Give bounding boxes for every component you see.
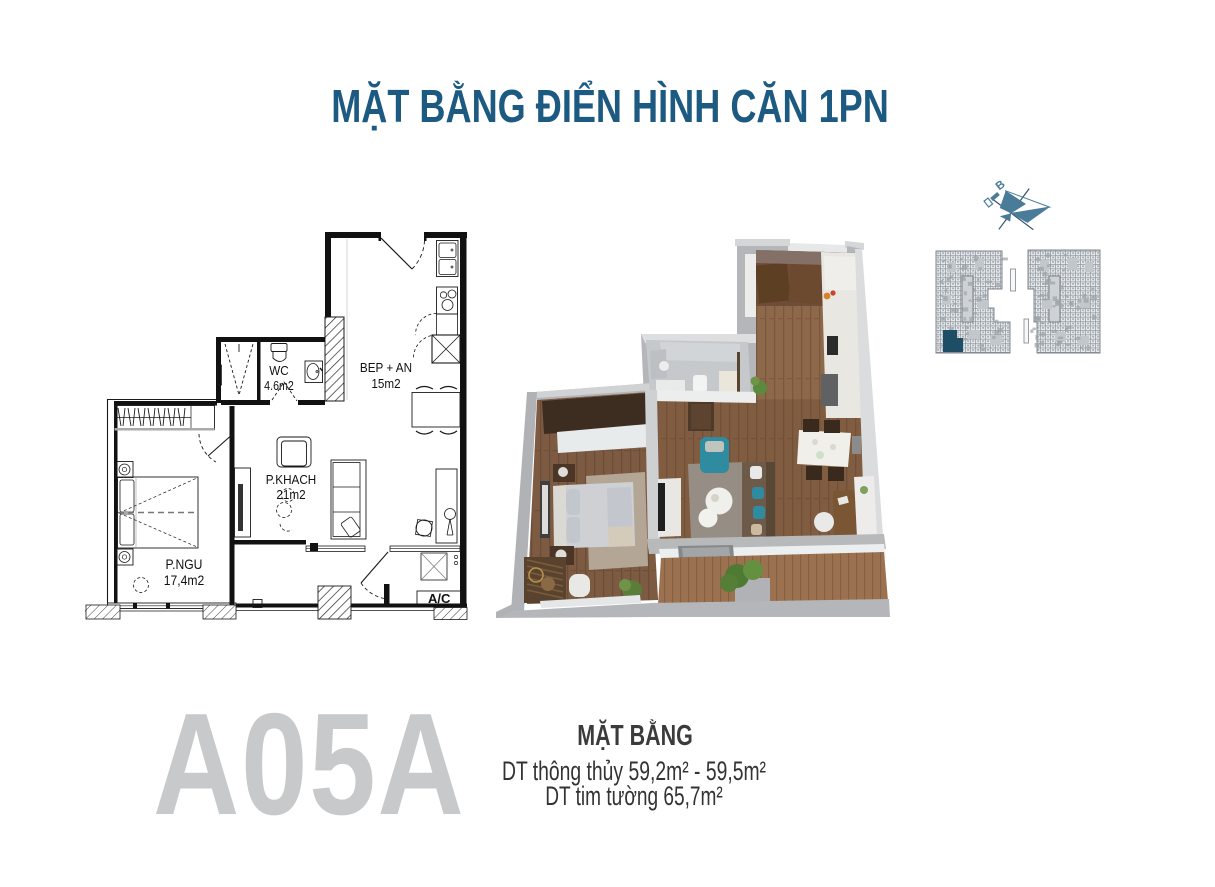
svg-text:17,4m2: 17,4m2 xyxy=(164,572,204,588)
svg-text:21m2: 21m2 xyxy=(276,487,305,502)
svg-text:MẶT BẰNG: MẶT BẰNG xyxy=(577,719,693,752)
svg-text:P.KHACH: P.KHACH xyxy=(266,472,316,487)
svg-text:A05A: A05A xyxy=(153,684,465,845)
svg-text:BEP + AN: BEP + AN xyxy=(360,360,412,375)
svg-text:4.6m2: 4.6m2 xyxy=(264,378,294,393)
svg-text:DT tim tường 65,7m²: DT tim tường 65,7m² xyxy=(545,781,723,811)
svg-text:P.NGU: P.NGU xyxy=(166,556,203,572)
svg-text:15m2: 15m2 xyxy=(371,376,400,391)
svg-text:MẶT BẰNG ĐIỂN HÌNH CĂN 1PN: MẶT BẰNG ĐIỂN HÌNH CĂN 1PN xyxy=(331,80,889,132)
svg-text:WC: WC xyxy=(269,363,289,378)
